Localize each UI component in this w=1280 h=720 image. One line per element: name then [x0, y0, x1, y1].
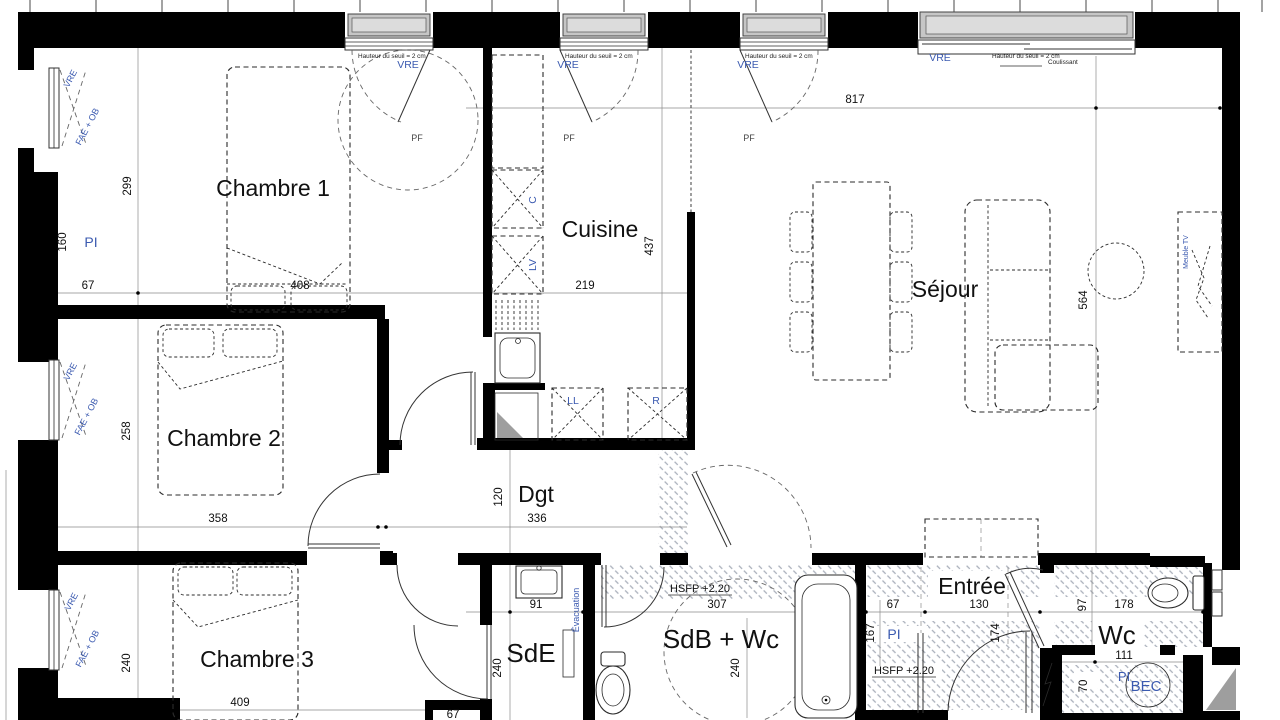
chair: [890, 312, 912, 352]
room-label-wc: Wc: [1098, 620, 1136, 650]
floor-plan-page: Chambre 1 Chambre 2 Chambre 3 Cuisine Sé…: [0, 0, 1280, 720]
pi-entree: PI: [887, 626, 900, 642]
corner-triangle-bottom-right: [1206, 668, 1236, 710]
fae-ob-left3: FAE + OB: [73, 628, 101, 668]
chair: [790, 262, 812, 302]
dim-70: 70: [1078, 680, 1090, 693]
closet-sejour-entree: [925, 519, 1038, 557]
tv-cabinet: [1178, 212, 1222, 352]
dim-97: 97: [1077, 599, 1089, 612]
wc-toilet: [1148, 576, 1204, 610]
fae-ob-left1: FAE + OB: [73, 106, 101, 146]
kitchen-sink: [495, 333, 540, 383]
dim-67-entree: 67: [887, 599, 900, 611]
vre-window1: VRE: [397, 59, 419, 71]
dim-437: 437: [644, 236, 656, 255]
window-wc-right: [1212, 570, 1222, 616]
vre-left1: VRE: [62, 68, 80, 89]
dim-409: 409: [230, 697, 249, 709]
pillow: [163, 329, 214, 357]
dim-178: 178: [1114, 599, 1133, 611]
door-sejour-dgt: [692, 465, 811, 548]
chair: [890, 262, 912, 302]
sde-toilet: [596, 652, 630, 714]
dim-219: 219: [575, 280, 594, 292]
pf-window2: PF: [563, 133, 575, 143]
pillow: [223, 329, 277, 357]
room-label-dgt: Dgt: [518, 481, 554, 507]
kitchen-label-r: R: [652, 395, 660, 407]
room-label-chambre1: Chambre 1: [216, 175, 330, 201]
pillow: [178, 567, 233, 595]
bec-label: BEC: [1131, 678, 1162, 695]
dim-817: 817: [845, 94, 864, 106]
dim-160: 160: [57, 232, 69, 251]
pf-window1: PF: [411, 133, 423, 143]
bed-chambre2: [158, 325, 283, 495]
pi-chambre1: PI: [84, 234, 97, 250]
window-swing-circle: [338, 50, 478, 190]
room-label-sejour: Séjour: [912, 276, 979, 302]
door-chambre3: [414, 625, 491, 699]
vre-left2: VRE: [62, 361, 80, 382]
dim-240-sdb: 240: [730, 658, 742, 677]
room-label-chambre2: Chambre 2: [167, 425, 281, 451]
dim-258: 258: [121, 421, 133, 440]
dim-130: 130: [969, 599, 988, 611]
hsfp-note-sdb: HSFP +2.20: [670, 583, 730, 595]
kitchen-plinth-dots: [496, 300, 538, 330]
door-chambre2: [308, 474, 380, 548]
meuble-tv-label: Meuble TV: [1183, 235, 1190, 269]
dim-174: 174: [990, 623, 1002, 643]
vre-bay: VRE: [929, 52, 951, 64]
plant: [1088, 243, 1144, 299]
vre-window3: VRE: [737, 59, 759, 71]
hsfp-note-entree: HSFP +2.20: [874, 665, 934, 677]
room-label-chambre3: Chambre 3: [200, 646, 314, 672]
dim-67-duct: 67: [447, 709, 460, 720]
note-coulissant: Coulissant: [1048, 59, 1078, 66]
evacuation-label: Évacuation: [571, 588, 581, 633]
pf-window3: PF: [743, 133, 755, 143]
kitchen-label-ll: LL: [567, 395, 579, 407]
dim-240-chambre3: 240: [121, 653, 133, 672]
room-label-entree: Entrée: [938, 573, 1006, 599]
dim-564: 564: [1078, 290, 1090, 310]
dim-336: 336: [527, 513, 546, 525]
chair: [790, 312, 812, 352]
dim-307: 307: [707, 599, 726, 611]
chair: [890, 212, 912, 252]
dim-408: 408: [290, 280, 309, 292]
vre-window2: VRE: [557, 59, 579, 71]
dim-299: 299: [122, 176, 134, 195]
fae-ob-left2: FAE + OB: [72, 396, 100, 436]
dim-120: 120: [493, 487, 505, 506]
floor-plan-drawing: Chambre 1 Chambre 2 Chambre 3 Cuisine Sé…: [0, 0, 1280, 720]
sde-washbasin: [516, 566, 562, 598]
bathtub: [795, 575, 857, 718]
dim-111: 111: [1115, 650, 1132, 662]
dim-167: 167: [865, 623, 877, 642]
vre-left3: VRE: [63, 591, 81, 612]
dim-91: 91: [530, 599, 543, 611]
chair: [790, 212, 812, 252]
top-ruler-ticks: [30, 0, 1262, 12]
door-dgt-lobby: [397, 565, 458, 626]
pillow: [237, 567, 292, 595]
dim-240-sde: 240: [492, 658, 504, 677]
dining-table: [790, 182, 912, 380]
kitchen-label-c: C: [527, 196, 539, 204]
room-label-sde: SdE: [506, 638, 555, 668]
pi-bec: PI: [1118, 669, 1130, 684]
kitchen-label-lv: LV: [527, 259, 539, 271]
dim-67-chambre1: 67: [82, 280, 95, 292]
door-chambre1: [400, 372, 475, 445]
dim-358: 358: [208, 513, 227, 525]
room-label-cuisine: Cuisine: [562, 216, 639, 242]
room-label-sdb-wc: SdB + Wc: [663, 624, 779, 654]
kitchen-units: [492, 50, 691, 440]
duct-triangle-kitchen: [497, 412, 523, 438]
towel-radiator: [563, 630, 574, 677]
sofa-chaise: [995, 345, 1098, 410]
